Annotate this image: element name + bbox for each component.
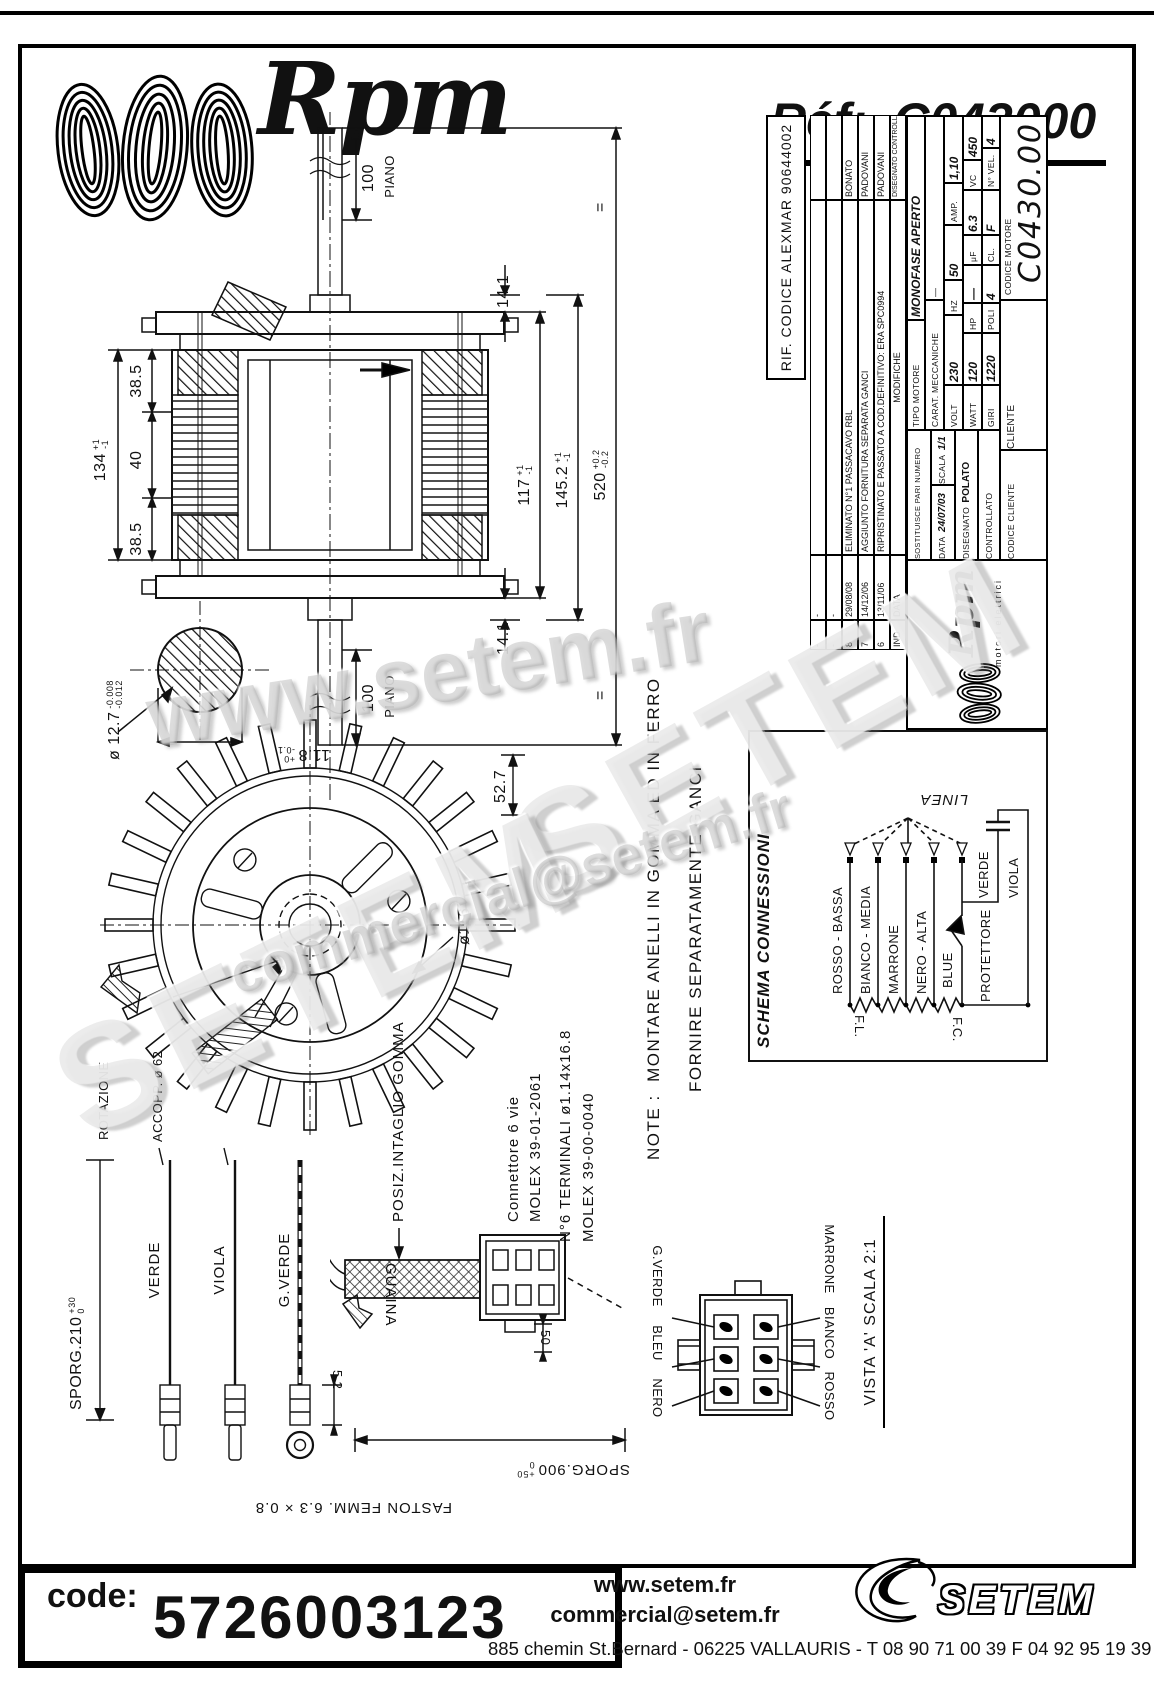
note-line1: NOTE : MONTARE ANELLI IN GOMMA ED IN FER… bbox=[644, 677, 664, 1160]
schema-fl-label: F.L. bbox=[852, 1015, 867, 1055]
hp-value: — bbox=[963, 265, 982, 303]
title-block: RIF. CODICE ALEXMAR 90644002 - - - - 8 2… bbox=[755, 115, 1048, 730]
drawing-sheet: Rpm Réf:C043000 bbox=[0, 0, 1154, 1683]
piano-right-label: PIANO bbox=[382, 139, 397, 214]
codice-motore-value: C0430.00 bbox=[1013, 122, 1048, 283]
revision-header-row: IND DATA MODIFICHE DISEGNATO CONTROLLATO bbox=[890, 115, 906, 730]
uf-value: 6.3 bbox=[963, 190, 982, 235]
hp-label: HP bbox=[963, 303, 982, 333]
rev-ind: 6 bbox=[874, 620, 890, 650]
vista-label-rosso: ROSSO bbox=[822, 1368, 837, 1424]
amp-value: 1,10 bbox=[944, 115, 963, 183]
carat-value: — bbox=[925, 115, 944, 300]
cl-label: CL. bbox=[982, 235, 1000, 265]
sostituisce-cell: SOSTITUISCE PARI NUMERO DEL - bbox=[906, 430, 931, 560]
dim-sporg210: SPORG.210+300 bbox=[68, 1200, 86, 1410]
terminali-line2: MOLEX 39-00-0040 bbox=[580, 1062, 597, 1242]
logo-cell: Rpm motori elettrici bbox=[906, 560, 1048, 730]
footer-brand: SETEM bbox=[938, 1578, 1096, 1623]
tipo-label: TIPO MOTORE bbox=[906, 320, 925, 430]
guaina-label: GUAINA bbox=[382, 1263, 399, 1338]
dim-145-2: 145.2+1-1 bbox=[554, 425, 572, 535]
footer-website: www.setem.fr bbox=[540, 1572, 790, 1598]
rev-date: 29/08/08 bbox=[842, 555, 858, 620]
rev-desc: RIPRISTINATO E PASSATO A COD.DEFINITIVO:… bbox=[874, 200, 890, 555]
rev-sign: BONATO bbox=[842, 115, 858, 200]
accopp-label: ACCOPP. ø 62 bbox=[150, 992, 165, 1142]
rev-sign: PADOVANI bbox=[858, 115, 874, 200]
dim-14-1-left: 14.1 bbox=[495, 600, 513, 655]
codice-cliente-cell: CODICE CLIENTE bbox=[1000, 450, 1048, 560]
hz-value: 50 bbox=[944, 225, 963, 280]
schema-wire-nero: NERO - ALTA bbox=[914, 874, 929, 994]
dim-38-5-a: 38.5 bbox=[128, 509, 146, 569]
amp-label: AMP. bbox=[944, 183, 963, 225]
dim-117: 117+1-1 bbox=[516, 440, 534, 530]
rev-sign bbox=[810, 115, 826, 200]
scan-edge-line bbox=[0, 11, 1154, 15]
schema-wire-protettore: PROTETTORE bbox=[978, 902, 993, 1002]
dim-shaft-diameter: ø 12.7-0.008-0.012 bbox=[106, 590, 124, 760]
revision-row: 8 29/08/08 ELIMINATO N°1 PASSACAVO RBL B… bbox=[842, 115, 858, 730]
technical-drawing-canvas: SPORG.210+300 VERDE VIOLA G.VERDE 5.2 FA… bbox=[0, 110, 1118, 1560]
schema-title: SCHEMA CONNESSIONI bbox=[754, 788, 774, 1048]
lead-label-gverde: G.VERDE bbox=[276, 1220, 293, 1320]
dim-100-left: 100 bbox=[360, 668, 378, 728]
volt-value: 230 bbox=[944, 315, 963, 385]
dim-520: 520+0.2-0.2 bbox=[592, 420, 610, 530]
schema-wire-viola: VIOLA bbox=[1006, 838, 1021, 898]
watt-label: WATT bbox=[963, 385, 982, 430]
poli-value: 4 bbox=[982, 265, 1000, 303]
dim-sporg900: SPORG.900+500 bbox=[420, 1460, 630, 1478]
tipo-value: MONOFASE APERTO bbox=[906, 115, 925, 320]
rev-desc bbox=[826, 200, 842, 555]
vista-label-marrone: MARRONE bbox=[822, 1220, 837, 1298]
schema-fc-label: F.C. bbox=[950, 1017, 965, 1057]
revision-row: - - bbox=[810, 115, 826, 730]
dim-14-1-right: 14.1 bbox=[495, 253, 513, 308]
carat-label: CARAT. MECCANICHE bbox=[925, 300, 944, 430]
motor-side-view-drawing bbox=[60, 102, 640, 860]
schema-wire-rosso: ROSSO - BASSA bbox=[830, 854, 845, 994]
schema-wire-blue: BLUE bbox=[940, 938, 955, 988]
carat-row: CARAT. MECCANICHE — bbox=[925, 115, 944, 430]
vista-label-bleu: BLEU bbox=[650, 1320, 665, 1366]
watt-row: WATT 120 HP — μF 6.3 VC 450 bbox=[963, 115, 982, 430]
rev-sign bbox=[826, 115, 842, 200]
schema-wire-bianco: BIANCO - MEDIA bbox=[858, 854, 873, 994]
vc-label: VC bbox=[963, 160, 982, 190]
rif-codice-box: RIF. CODICE ALEXMAR 90644002 bbox=[766, 115, 806, 380]
cl-value: F bbox=[982, 190, 1000, 235]
nvel-value: 4 bbox=[982, 115, 1000, 148]
fan-diameter-label: ø116 bbox=[456, 875, 474, 945]
rev-header-date: DATA bbox=[890, 555, 906, 620]
rev-ind: - bbox=[826, 620, 842, 650]
piano-left-label: PIANO bbox=[382, 659, 397, 734]
tipo-motore-row: TIPO MOTORE MONOFASE APERTO bbox=[906, 115, 925, 430]
schema-linea-label: LINEA bbox=[873, 791, 968, 808]
revision-row: 7 14/12/06 AGGIUNTO FORNITURA SEPARATA G… bbox=[858, 115, 874, 730]
vista-label-bianco: BIANCO bbox=[822, 1302, 837, 1364]
tb-rpm-sub: motori elettrici bbox=[993, 579, 1003, 667]
dim-11-8: 11.8+0-0.1 bbox=[235, 745, 330, 763]
code-value: 5726003123 bbox=[153, 1583, 507, 1652]
rev-date: - bbox=[826, 555, 842, 620]
lead-label-viola: VIOLA bbox=[211, 1230, 228, 1310]
rev-desc: AGGIUNTO FORNITURA SEPARATA GANCI bbox=[858, 200, 874, 555]
tb-rpm-brand: Rpm bbox=[947, 569, 977, 657]
codice-motore-cell: CODICE MOTORE C0430.00 bbox=[1000, 115, 1048, 300]
rev-date: 14/12/06 bbox=[858, 555, 874, 620]
revision-row: 6 13/11/06 RIPRISTINATO E PASSATO A COD.… bbox=[874, 115, 890, 730]
rev-date: 13/11/06 bbox=[874, 555, 890, 620]
dim-100-right: 100 bbox=[360, 148, 378, 208]
lead-label-verde: VERDE bbox=[146, 1230, 163, 1310]
vista-title: VISTA 'A' SCALA 2:1 bbox=[862, 1216, 885, 1428]
vc-value: 450 bbox=[963, 115, 982, 160]
nvel-label: N° VEL. bbox=[982, 148, 1000, 190]
rev-date: - bbox=[810, 555, 826, 620]
lead-wires-drawing bbox=[60, 1120, 360, 1520]
rev-ind: 8 bbox=[842, 620, 858, 650]
dim-134: 134+1-1 bbox=[92, 350, 110, 570]
setem-swoosh-icon bbox=[848, 1552, 943, 1637]
schema-wire-marrone: MARRONE bbox=[886, 884, 901, 994]
uf-label: μF bbox=[963, 235, 982, 265]
code-label: code: bbox=[47, 1577, 138, 1616]
terminali-line1: N°6 TERMINALI ø1.14x16.8 bbox=[557, 1022, 574, 1242]
schema-wire-verde: VERDE bbox=[976, 838, 991, 898]
giri-label: GIRI bbox=[982, 385, 1000, 430]
rev-header-desc: MODIFICHE bbox=[890, 200, 906, 555]
poli-label: POLI bbox=[982, 303, 1000, 333]
watt-value: 120 bbox=[963, 333, 982, 385]
footer-address: 885 chemin St.Bernard - 06225 VALLAURIS … bbox=[488, 1638, 1136, 1660]
giri-value: 1220 bbox=[982, 333, 1000, 385]
cliente-cell: CLIENTE bbox=[1000, 300, 1048, 450]
rev-sign: PADOVANI bbox=[874, 115, 890, 200]
rev-desc: ELIMINATO N°1 PASSACAVO RBL bbox=[842, 200, 858, 555]
revision-row: - - bbox=[826, 115, 842, 730]
controllato-cell: CONTROLLATO bbox=[978, 430, 1000, 560]
rev-header-ind: IND bbox=[890, 620, 906, 650]
hz-label: HZ bbox=[944, 280, 963, 315]
note-line2: FORNIRE SEPARATAMENTE GANCI bbox=[686, 765, 706, 1092]
vista-label-nero: NERO bbox=[650, 1372, 665, 1424]
equal-mark-left: = bbox=[592, 680, 610, 700]
dim-40: 40 bbox=[128, 440, 146, 480]
dim-38-5-b: 38.5 bbox=[128, 351, 146, 411]
disegnato-cell: DISEGNATO POLATO bbox=[955, 430, 978, 560]
scala-cell: SCALA 1/1 bbox=[931, 430, 955, 485]
rpm-coils-small-icon bbox=[951, 661, 1009, 725]
rev-ind: 7 bbox=[858, 620, 874, 650]
volt-row: VOLT 230 HZ 50 AMP. 1,10 bbox=[944, 115, 963, 430]
rev-header-sign: DISEGNATO CONTROLLATO bbox=[890, 115, 906, 200]
rev-ind: - bbox=[810, 620, 826, 650]
vista-label-gverde: G.VERDE bbox=[650, 1236, 665, 1316]
rotazione-label: ROTAZIONE bbox=[96, 1020, 111, 1140]
footer-email: commercial@setem.fr bbox=[510, 1602, 820, 1628]
volt-label: VOLT bbox=[944, 385, 963, 430]
giri-row: GIRI 1220 POLI 4 CL. F N° VEL. 4 bbox=[982, 115, 1000, 430]
dim-50: 50 bbox=[538, 1330, 553, 1360]
data-cell: DATA 24/07/03 bbox=[931, 485, 955, 560]
rev-desc bbox=[810, 200, 826, 555]
equal-mark-right: = bbox=[592, 192, 610, 212]
